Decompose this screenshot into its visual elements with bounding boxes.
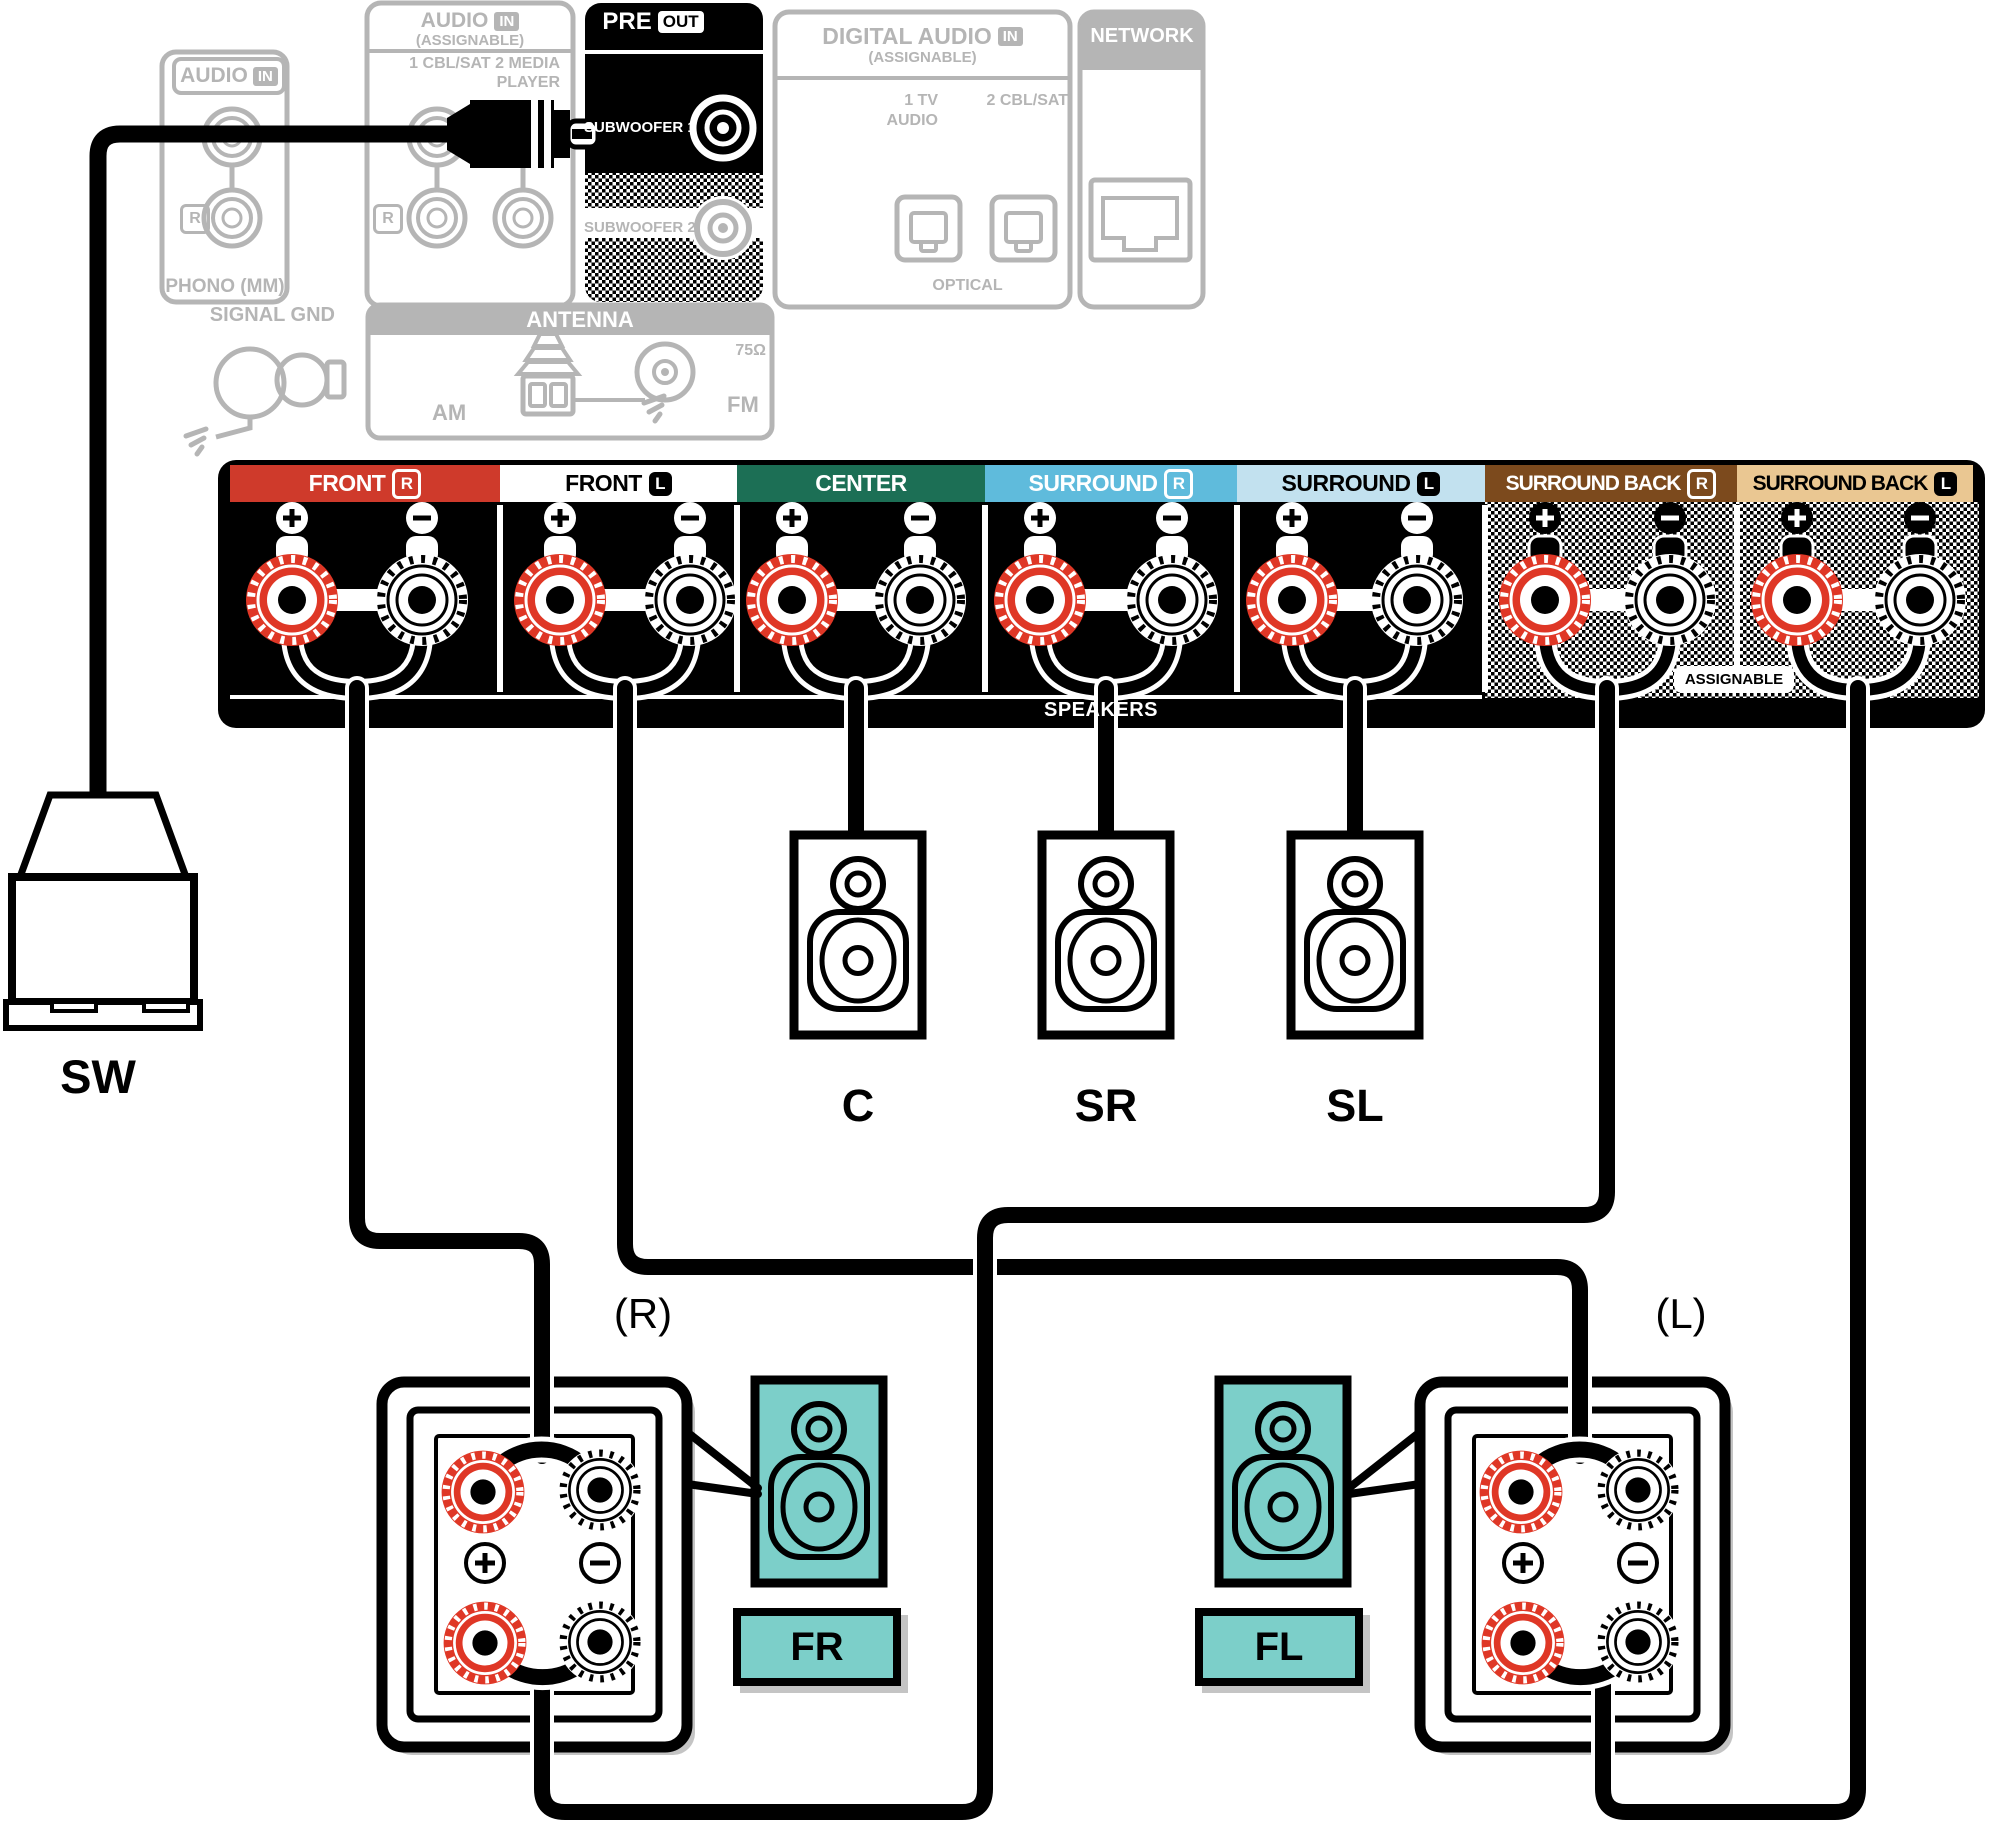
subwoofer2-label: SUBWOOFER 2 [584,220,696,236]
channel-badge-r: R [1687,469,1716,499]
front-left-speaker-tag: FL [1195,1608,1363,1686]
am-label: AM [432,401,466,424]
digital-input1-line2: AUDIO [868,113,938,130]
terminal-section-label-surroundR: SURROUNDR [985,465,1237,502]
digital-subheader: (ASSIGNABLE) [790,50,1055,66]
antenna-header: ANTENNA [495,308,665,331]
digital-input2: 2 CBL/SAT [978,93,1068,110]
section-label-text: SURROUND [1282,470,1411,497]
terminal-section-label-surround-backR: SURROUND BACKR [1485,465,1737,502]
optical-caption: OPTICAL [915,278,1020,295]
signal-gnd-label: SIGNAL GND [195,305,335,326]
terminal-section-label-surround-backL: SURROUND BACKL [1737,465,1973,502]
binding-post-white [1597,1601,1680,1684]
phono-caption: PHONO (MM) [160,277,290,297]
phono-r-channel-badge: R [180,204,210,234]
analog-inputs-line2: PLAYER [368,75,560,92]
binding-post-red [994,554,1086,646]
terminal-section-label-frontL: FRONTL [500,465,737,502]
wiring-diagram-canvas [0,0,1992,1831]
surround-left-speaker-icon [1291,835,1419,1035]
terminal-section-label-surroundL: SURROUNDL [1237,465,1485,502]
section-label-text: SURROUND [1029,470,1158,497]
binding-post-red [1482,1602,1565,1685]
section-label-text: SURROUND BACK [1753,472,1928,496]
channel-badge-l: L [1417,472,1440,496]
assignable-r-channel-badge: R [373,204,403,234]
digital-audio-label: DIGITAL AUDIO [822,24,992,48]
binding-post-red [746,554,838,646]
channel-badge-r: R [392,469,421,499]
binding-post-red [442,1451,525,1534]
surround-right-speaker-label: SR [1056,1082,1156,1129]
assignable-pill: ASSIGNABLE [1674,666,1794,693]
center-speaker-icon [794,835,922,1035]
speakers-strip-label: SPEAKERS [1015,700,1187,721]
network-header: NETWORK [1082,26,1202,47]
fm-label: FM [727,393,759,416]
surround-right-speaker-icon [1042,835,1170,1035]
subwoofer1-label: SUBWOOFER 1 [584,120,696,136]
center-speaker-label: C [808,1082,908,1129]
subwoofer-label: SW [48,1052,148,1101]
speaker-terminal-label-bar: FRONTRFRONTLCENTERSURROUNDRSURROUNDLSURR… [230,465,1973,502]
binding-post-white [559,1601,642,1684]
pre-out-panel [585,3,763,302]
binding-post-white [1624,554,1716,646]
front-left-speaker-icon [1219,1380,1347,1583]
subwoofer-box [6,795,200,1028]
fm-impedance-label: 75Ω [712,343,766,360]
digital-audio-header: DIGITAL AUDIO IN [790,22,1055,50]
section-label-text: FRONT [309,470,386,497]
in-badge-icon: IN [253,67,278,86]
front-right-speaker-icon [755,1380,883,1583]
binding-post-red [444,1602,527,1685]
binding-post-white [559,1449,642,1532]
binding-post-red [1480,1451,1563,1534]
terminal-section-label-frontR: FRONTR [230,465,500,502]
audio-in-assignable-header: AUDIO IN [380,8,560,34]
binding-post-white [1597,1449,1680,1532]
pre-label: PRE [602,9,651,34]
binding-post-white [644,554,736,646]
channel-badge-l: L [1934,472,1957,496]
binding-post-white [1874,554,1966,646]
binding-post-red [1751,554,1843,646]
pre-out-header: PRE OUT [598,8,708,36]
binding-post-white [1371,554,1463,646]
front-right-speaker-tag: FR [733,1608,901,1686]
in-badge-icon: IN [494,12,519,31]
section-label-text: FRONT [565,470,642,497]
binding-post-white [376,554,468,646]
binding-post-white [1126,554,1218,646]
left-channel-note: (L) [1631,1292,1731,1336]
channel-badge-r: R [1164,469,1193,499]
section-label-text: CENTER [815,470,907,497]
binding-post-red [1499,554,1591,646]
right-channel-note: (R) [593,1292,693,1336]
binding-post-white [874,554,966,646]
assignable-subheader: (ASSIGNABLE) [380,33,560,49]
digital-input1-line1: 1 TV [868,93,938,110]
surround-left-speaker-label: SL [1305,1082,1405,1129]
section-label-text: SURROUND BACK [1506,472,1681,496]
analog-inputs-line1: 1 CBL/SAT 2 MEDIA [368,56,560,73]
out-badge-icon: OUT [658,11,704,33]
in-badge-icon: IN [998,27,1023,46]
diagram-stage: AUDIO IN R PHONO (MM) SIGNAL GND AUDIO I… [0,0,1992,1831]
audio-in-label: AUDIO [180,65,248,87]
channel-badge-l: L [649,472,672,496]
binding-post-red [1246,554,1338,646]
audio-in2-label: AUDIO [421,10,489,32]
binding-post-red [514,554,606,646]
binding-post-red [246,554,338,646]
terminal-section-label-center: CENTER [737,465,985,502]
audio-in-header-box: AUDIO IN [172,57,286,95]
